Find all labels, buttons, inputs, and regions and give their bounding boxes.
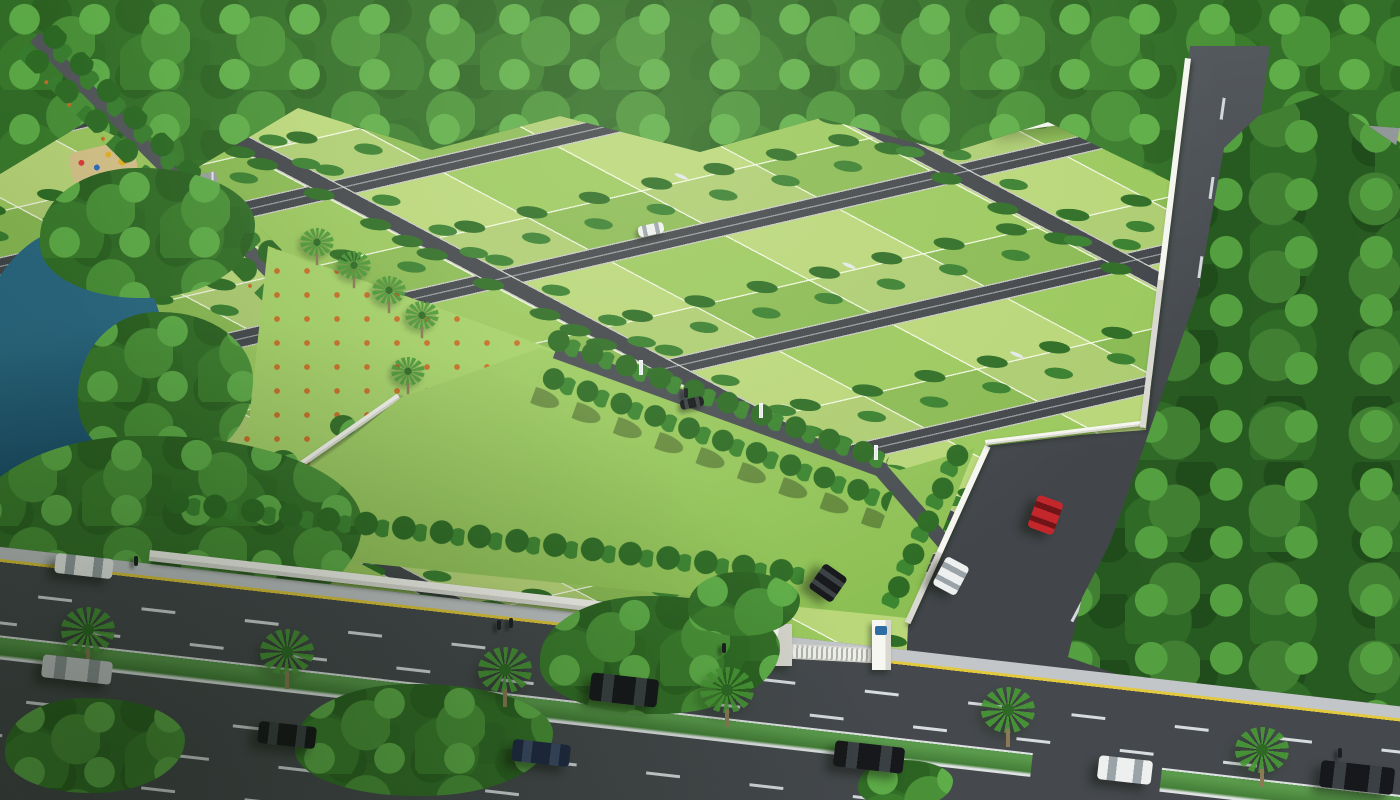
median-palm-tree: [260, 629, 314, 693]
palm-fronds: [1235, 727, 1289, 773]
pedestrian: [684, 388, 688, 398]
median-palm-tree: [700, 667, 754, 731]
garden-palm-tree: [372, 276, 405, 316]
palm-trunk: [316, 254, 318, 265]
cyclist: [509, 618, 513, 628]
developer-logo: [875, 626, 887, 635]
palm-fronds: [61, 607, 115, 653]
palm-trunk: [407, 383, 409, 394]
street-light: [640, 362, 642, 375]
street-light: [875, 447, 877, 460]
garden-palm-tree: [300, 228, 333, 268]
palm-fronds: [981, 687, 1035, 733]
palm-trunk: [725, 709, 729, 727]
palm-fronds: [372, 276, 405, 305]
palm-fronds: [391, 357, 424, 386]
pedestrian: [1338, 748, 1342, 758]
palm-trunk: [285, 671, 289, 689]
palm-fronds: [300, 228, 333, 257]
palm-trunk: [1260, 769, 1264, 787]
cyclist: [497, 620, 501, 630]
pedestrian: [722, 643, 726, 653]
palm-fronds: [700, 667, 754, 713]
median-palm-tree: [1235, 727, 1289, 791]
median-palm-tree: [981, 687, 1035, 751]
palm-fronds: [405, 301, 438, 330]
palm-trunk: [421, 327, 423, 338]
aerial-render-scene: [0, 0, 1400, 800]
palm-fronds: [260, 629, 314, 675]
garden-palm-tree: [405, 301, 438, 341]
street-light: [760, 405, 762, 418]
garden-palm-tree: [391, 357, 424, 397]
palm-trunk: [353, 277, 355, 288]
palm-trunk: [1006, 729, 1010, 747]
median-palm-tree: [478, 647, 532, 711]
palm-trunk: [388, 302, 390, 313]
palm-fronds: [337, 251, 370, 280]
garden-palm-tree: [337, 251, 370, 291]
palm-trunk: [503, 689, 507, 707]
entrance-sign-pylon: [872, 620, 891, 670]
palm-fronds: [478, 647, 532, 693]
pedestrian: [134, 556, 138, 566]
